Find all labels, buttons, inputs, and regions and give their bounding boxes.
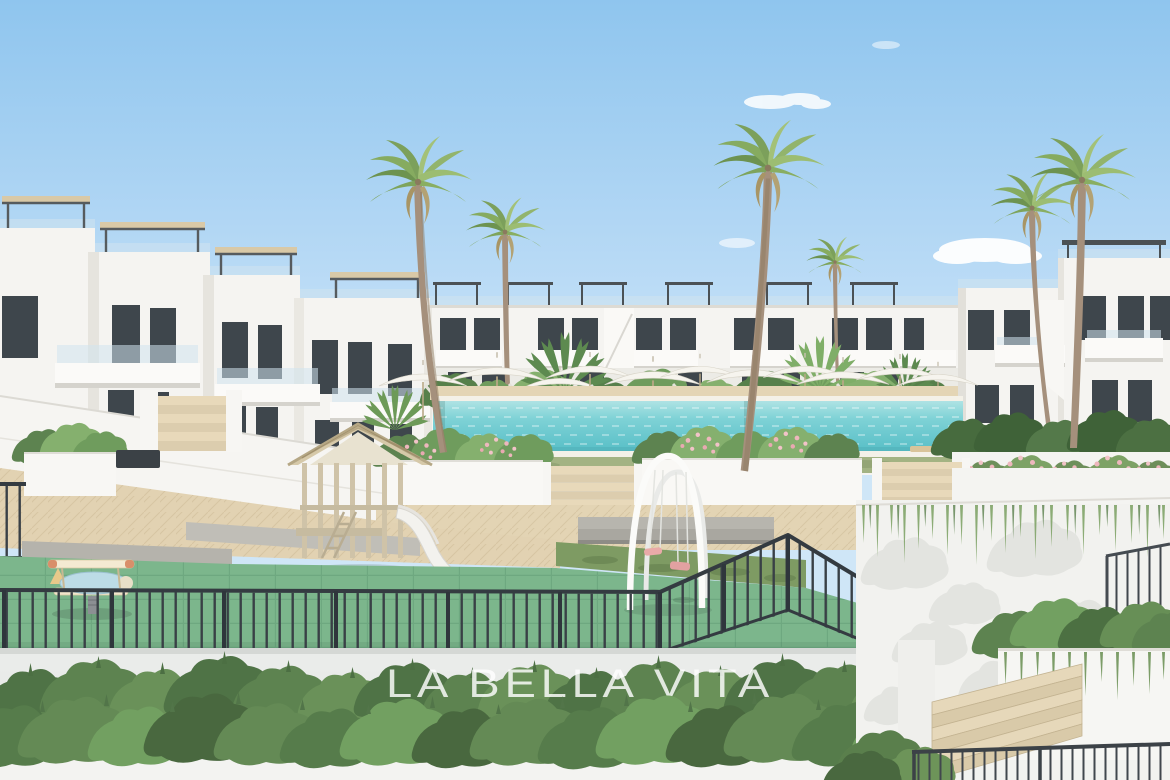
concrete-bench <box>578 517 774 544</box>
steps-left-of-pool <box>140 390 242 452</box>
railing-bottom-right <box>912 744 1170 780</box>
watermark-title: LA BELLA VITA <box>386 662 774 706</box>
property-render-image: LA BELLA VITA REAL ESTATE <box>0 0 1170 780</box>
barbecue <box>116 450 160 468</box>
right-terrace <box>822 468 1170 780</box>
